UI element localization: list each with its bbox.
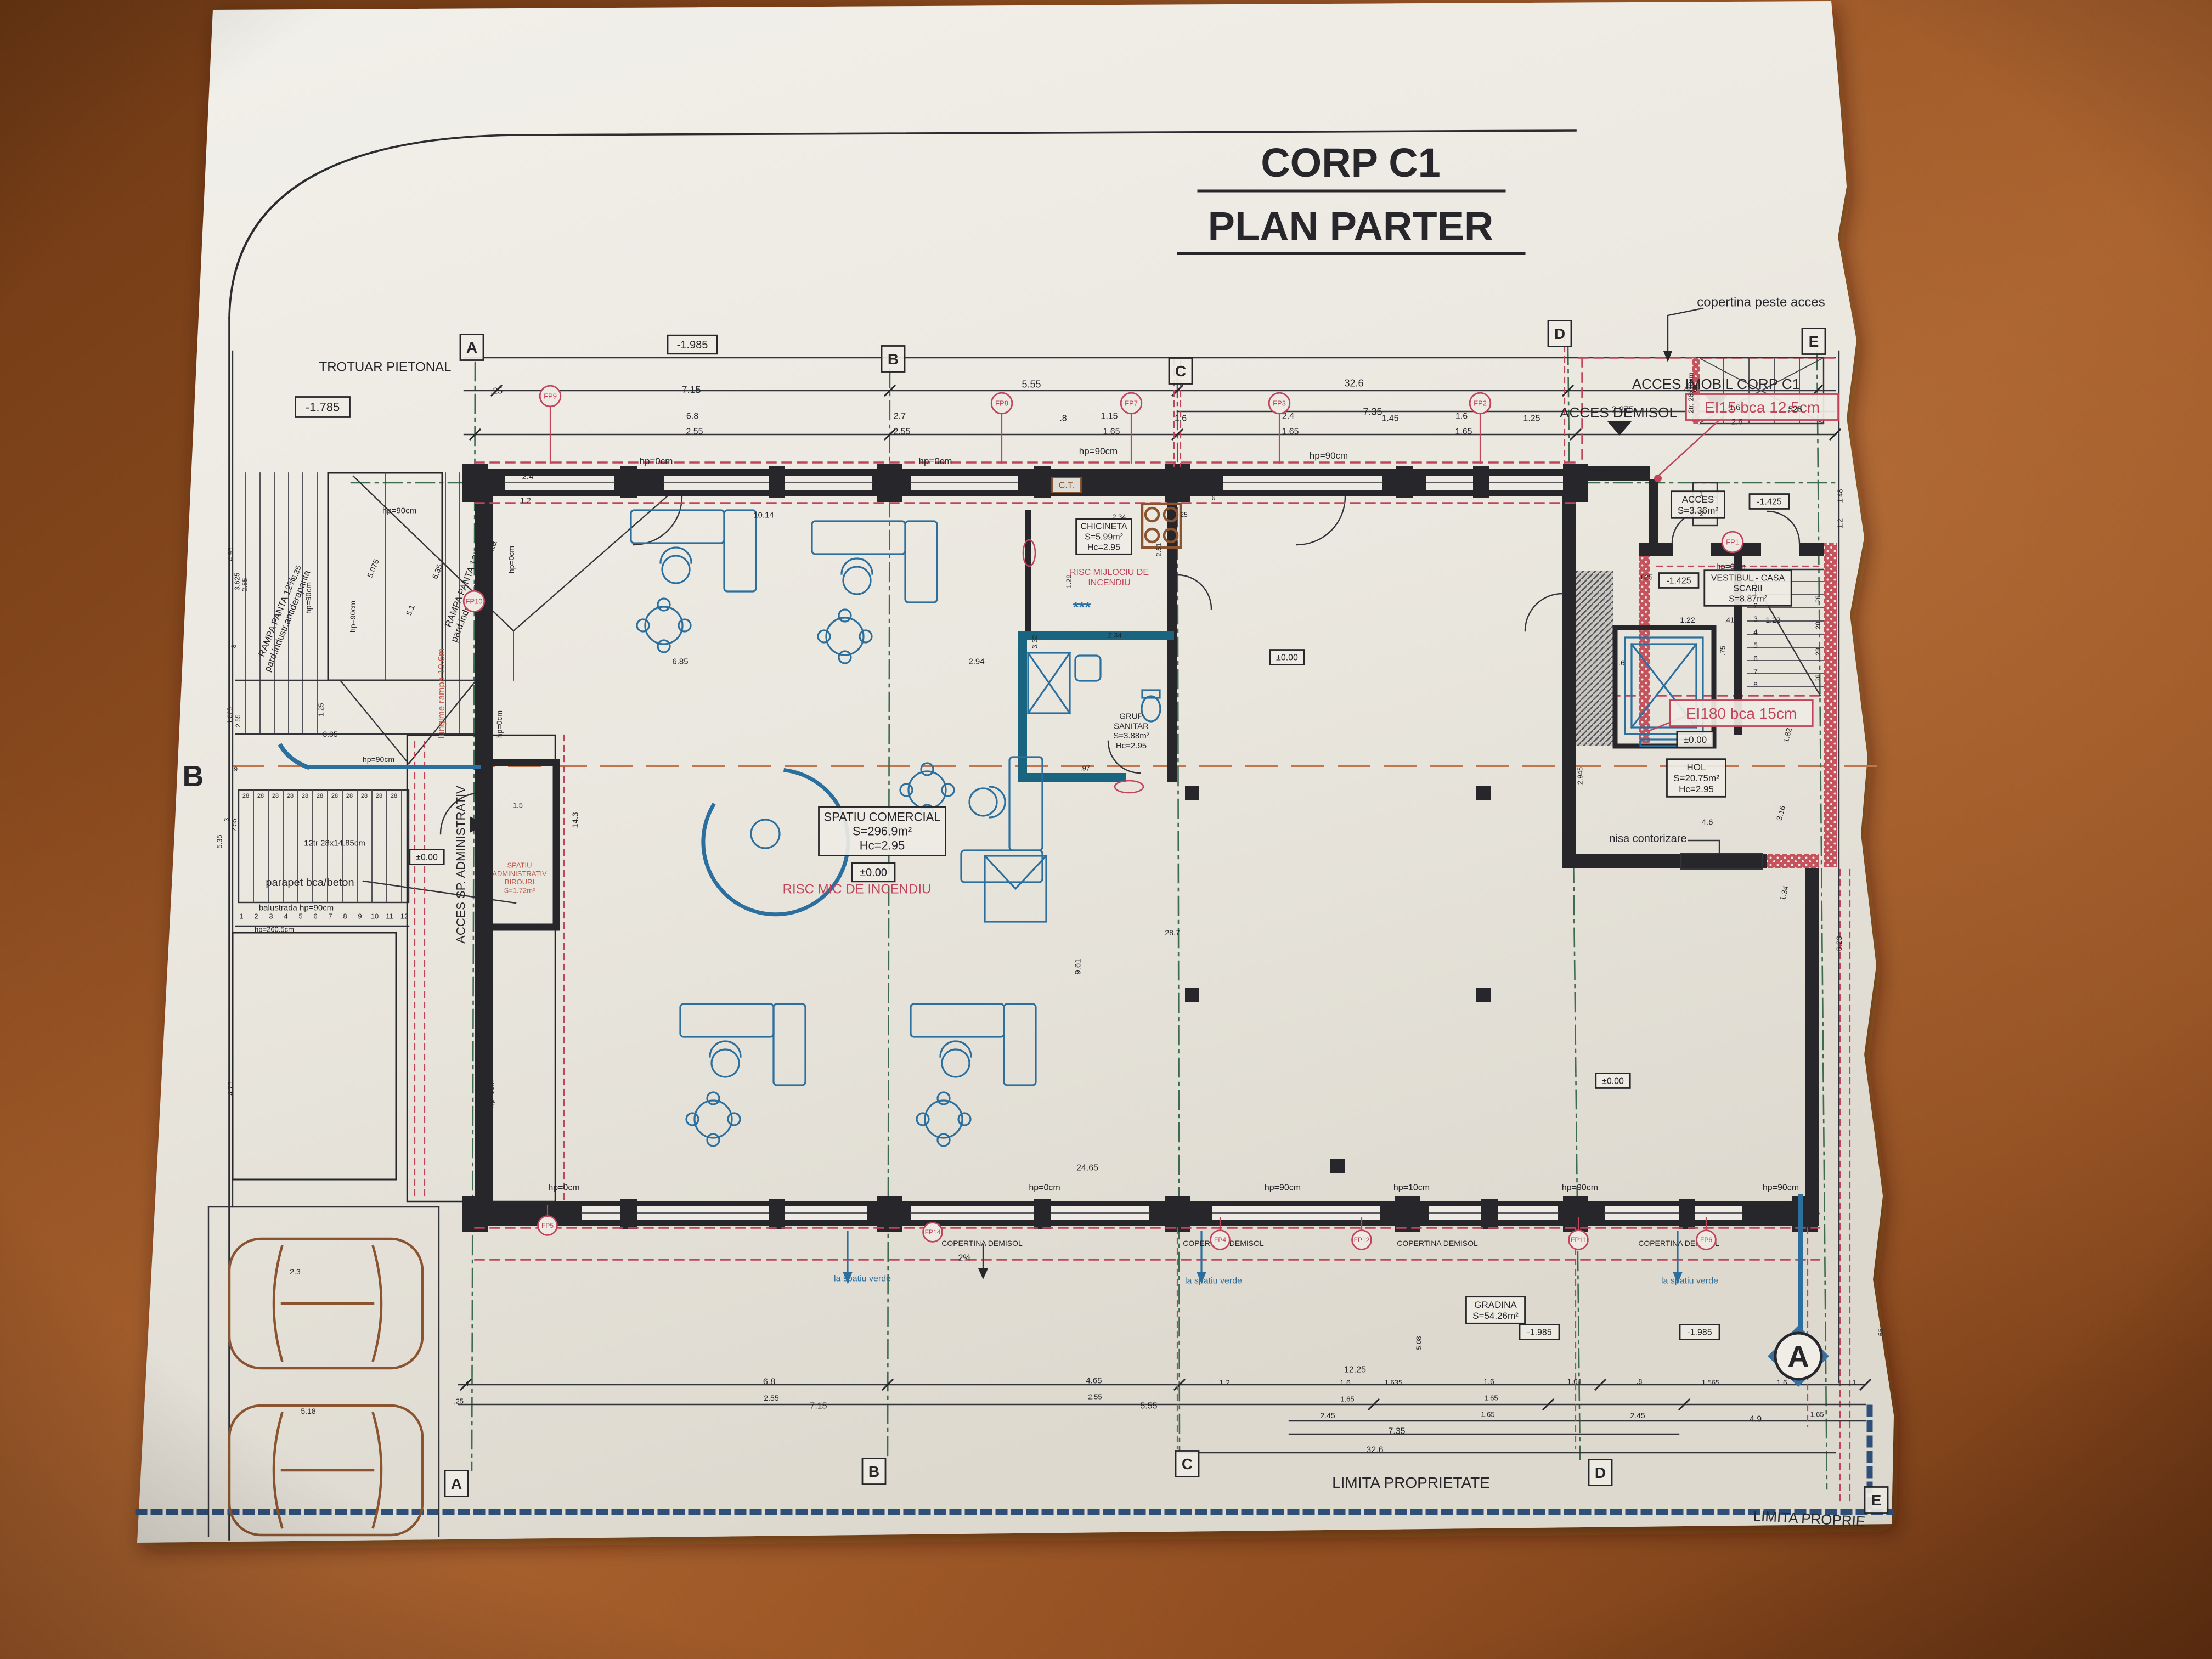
svg-text:5: 5 xyxy=(298,912,302,921)
svg-text:2.55: 2.55 xyxy=(764,1393,778,1402)
fp-marker: FP10 xyxy=(464,591,484,612)
svg-text:28: 28 xyxy=(376,793,382,799)
svg-text:1.65: 1.65 xyxy=(1340,1395,1354,1403)
svg-text:hp=0cm: hp=0cm xyxy=(919,456,952,466)
svg-text:1.2: 1.2 xyxy=(520,496,531,505)
plan-annotation: 2.45 xyxy=(1630,1411,1645,1420)
plan-annotation: 1.22 xyxy=(1680,616,1695,624)
grid-letter-top: B xyxy=(882,346,905,371)
plan-annotation: 32.6 xyxy=(1344,377,1363,388)
plan-annotation: 7.15 xyxy=(681,384,701,395)
svg-text:LIMITA PROPRIETATE: LIMITA PROPRIETATE xyxy=(1332,1474,1490,1491)
svg-text:1.29: 1.29 xyxy=(1065,574,1073,588)
svg-text:la spatiu verde: la spatiu verde xyxy=(834,1274,891,1284)
section-letter-b: B xyxy=(183,760,204,793)
svg-text:2.7: 2.7 xyxy=(894,412,906,421)
level-box: -1.985 xyxy=(1680,1325,1719,1340)
svg-text:hp=0cm: hp=0cm xyxy=(548,1183,579,1193)
svg-text:FP4: FP4 xyxy=(1214,1236,1226,1244)
plan-annotation: 28 xyxy=(242,793,249,799)
svg-text:28: 28 xyxy=(1814,595,1822,603)
plan-annotation: hp=90cm xyxy=(382,506,416,515)
plan-annotation: 1.29 xyxy=(1065,574,1073,588)
svg-text:1.22: 1.22 xyxy=(1680,616,1695,624)
svg-text:.8: .8 xyxy=(1059,414,1066,424)
grid-letter-top: E xyxy=(1802,328,1825,354)
svg-text:9: 9 xyxy=(358,912,362,921)
svg-text:1.5: 1.5 xyxy=(513,802,523,810)
stair-number: 8 xyxy=(343,912,347,921)
plan-annotation: 6 xyxy=(1212,494,1216,502)
plan-annotation: 6.8 xyxy=(686,412,698,421)
plan-annotation: 2.55 xyxy=(230,819,238,832)
plan-annotation: 4.95 xyxy=(227,547,235,561)
svg-text:hp=0cm: hp=0cm xyxy=(495,710,504,738)
plan-annotation: 28 xyxy=(1814,648,1822,656)
plan-annotation: 1.65 xyxy=(1455,427,1472,437)
plan-annotation: 2.55 xyxy=(241,578,249,591)
svg-text:2.94: 2.94 xyxy=(968,657,984,666)
svg-text:TROTUAR PIETONAL: TROTUAR PIETONAL xyxy=(319,359,452,374)
svg-text:2.4: 2.4 xyxy=(522,472,534,481)
svg-text:E: E xyxy=(1809,333,1819,350)
wet-wall xyxy=(1022,631,1174,640)
svg-text:.525: .525 xyxy=(1786,404,1802,414)
svg-text:1.65: 1.65 xyxy=(1481,1410,1494,1419)
svg-text:5.55: 5.55 xyxy=(1140,1402,1157,1411)
svg-text:hp=90cm: hp=90cm xyxy=(1763,1183,1799,1193)
svg-text:2.61: 2.61 xyxy=(1155,543,1163,556)
svg-text:7.15: 7.15 xyxy=(810,1402,827,1411)
parapet-height: hp=0cm xyxy=(640,456,673,466)
svg-text:EI15 bca 12.5cm: EI15 bca 12.5cm xyxy=(1705,399,1820,416)
plan-annotation: 5.55 xyxy=(1140,1402,1157,1411)
room-label: GRADINAS=54.26m² xyxy=(1466,1297,1525,1324)
svg-text:4.95: 4.95 xyxy=(227,547,235,561)
plan-annotation: .8 xyxy=(1637,1378,1643,1386)
svg-text:6.85: 6.85 xyxy=(672,657,688,666)
plan-annotation: hp=90cm xyxy=(348,601,357,633)
svg-text:12tr 28x14.85cm: 12tr 28x14.85cm xyxy=(304,838,365,848)
parapet-height: hp=0cm xyxy=(548,1183,579,1193)
svg-text:6: 6 xyxy=(313,912,317,921)
svg-text:2.3: 2.3 xyxy=(290,1267,301,1276)
room-label: HOLS=20.75m²Hc=2.95 xyxy=(1667,759,1725,797)
plan-annotation: 2.3 xyxy=(290,1267,301,1276)
parapet-label: parapet bca/beton xyxy=(266,877,354,889)
svg-text:1.6: 1.6 xyxy=(1776,1378,1787,1387)
svg-text:1: 1 xyxy=(1700,490,1703,498)
svg-text:14.3: 14.3 xyxy=(571,812,580,828)
plan-annotation: 1.635 xyxy=(1385,1379,1403,1387)
fire-rating-label: EI180 bca 15cm xyxy=(1670,700,1813,726)
to-green-label: la spatiu verde xyxy=(1185,1277,1242,1286)
svg-text:lungime rampa 19.6m: lungime rampa 19.6m xyxy=(436,648,447,738)
plan-annotation: 28 xyxy=(1814,674,1822,682)
svg-text:5.18: 5.18 xyxy=(301,1407,315,1415)
svg-text:±0.00: ±0.00 xyxy=(1684,735,1707,745)
svg-text:hp=10cm: hp=10cm xyxy=(1393,1183,1430,1193)
plan-annotation: .525 xyxy=(1786,404,1802,414)
svg-text:2.34: 2.34 xyxy=(1108,631,1121,640)
svg-text:5.35: 5.35 xyxy=(216,834,224,848)
to-green-label: la spatiu verde xyxy=(834,1274,891,1284)
plan-annotation: 1.65 xyxy=(1340,1395,1354,1403)
svg-text:6.8: 6.8 xyxy=(686,412,698,421)
plan-annotation: 1.65 xyxy=(1103,427,1120,437)
sheet-title-line1: CORP C1 xyxy=(1261,140,1441,185)
paper-sheet xyxy=(137,1,1894,1543)
svg-text:7.35: 7.35 xyxy=(1388,1427,1405,1436)
svg-text:***: *** xyxy=(1073,599,1091,616)
stair-number: 3 xyxy=(1753,614,1758,623)
svg-text:hp=90cm: hp=90cm xyxy=(363,755,394,764)
plan-annotation: 2.7 xyxy=(894,412,906,421)
svg-text:3.625: 3.625 xyxy=(233,573,241,591)
svg-text:FP1: FP1 xyxy=(1726,538,1739,546)
plan-annotation: 3 xyxy=(223,817,230,821)
svg-text:2: 2 xyxy=(1700,510,1703,518)
room-label: VESTIBUL - CASASCARIIS=8.87m² xyxy=(1705,571,1791,606)
grid-letter-top: C xyxy=(1169,358,1192,383)
svg-text:12: 12 xyxy=(400,912,408,921)
svg-text:28: 28 xyxy=(331,793,338,799)
property-line-label: LIMITA PROPRIETATE xyxy=(1332,1474,1490,1491)
svg-text:FP12: FP12 xyxy=(1354,1236,1370,1244)
svg-text:4: 4 xyxy=(1753,628,1758,636)
svg-text:1.65: 1.65 xyxy=(1455,427,1472,437)
plan-annotation: 2.55 xyxy=(893,427,910,437)
plan-annotation: .75 xyxy=(1719,646,1727,656)
svg-text:D: D xyxy=(1595,1464,1606,1481)
boiler-label: C.T. xyxy=(1052,478,1081,493)
stair-number: 5 xyxy=(1753,641,1758,650)
level-box: -1.985 xyxy=(668,335,717,354)
svg-text:hp=0cm: hp=0cm xyxy=(640,456,673,466)
plan-annotation: .625 xyxy=(1639,573,1652,582)
stair-number: 9 xyxy=(358,912,362,921)
svg-text:5.55: 5.55 xyxy=(1022,379,1041,390)
svg-text:28: 28 xyxy=(1814,648,1822,656)
plan-annotation: 6.8 xyxy=(763,1378,775,1387)
svg-text:1.15: 1.15 xyxy=(1101,412,1118,421)
plan-annotation: 5.18 xyxy=(301,1407,315,1415)
admin-access-label: ACCES SP. ADMINISTRATIV xyxy=(454,786,468,944)
plan-annotation: 1.65 xyxy=(1484,1394,1498,1402)
plan-annotation: 32.6 xyxy=(1366,1446,1383,1455)
grid-letter-bottom: A xyxy=(445,1470,468,1496)
svg-text:28: 28 xyxy=(346,793,353,799)
svg-text:2.6: 2.6 xyxy=(1731,417,1743,426)
svg-text:1.6: 1.6 xyxy=(1614,658,1625,667)
railing-label: balustrada hp=90cm xyxy=(259,903,334,912)
svg-text:±0.00: ±0.00 xyxy=(416,853,438,862)
plan-annotation: 10.14 xyxy=(753,510,774,520)
plan-annotation: 28 xyxy=(331,793,338,799)
svg-text:FP10: FP10 xyxy=(465,597,482,606)
plan-annotation: 2.55 xyxy=(764,1393,778,1402)
plan-annotation: 1 xyxy=(1700,490,1703,498)
plan-annotation: 2.34 xyxy=(1112,513,1126,521)
parapet-height: hp=90cm xyxy=(1310,450,1348,461)
plan-annotation: 1.48 xyxy=(1836,489,1844,503)
plan-annotation: 1.6 xyxy=(1340,1378,1351,1387)
plan-annotation: .8 xyxy=(1059,414,1066,424)
svg-text:1.65: 1.65 xyxy=(1484,1394,1498,1402)
svg-text:11: 11 xyxy=(386,912,393,921)
plan-annotation: 28 xyxy=(1814,622,1822,629)
plan-annotation: 7.15 xyxy=(810,1402,827,1411)
svg-text:GRADINAS=54.26m²: GRADINAS=54.26m² xyxy=(1472,1300,1519,1321)
stair-number: 6 xyxy=(1753,654,1758,663)
svg-text:1.6: 1.6 xyxy=(1729,403,1741,412)
svg-text:25: 25 xyxy=(1180,511,1188,518)
svg-text:28: 28 xyxy=(361,793,368,799)
svg-text:5.08: 5.08 xyxy=(1415,1336,1423,1350)
svg-text:6: 6 xyxy=(1753,654,1758,663)
stair-number: 4 xyxy=(1753,628,1758,636)
masonry-wall xyxy=(1767,854,1819,868)
svg-text:±0.00: ±0.00 xyxy=(860,867,887,879)
wet-wall xyxy=(1018,631,1027,782)
svg-text:7: 7 xyxy=(1753,667,1758,676)
room-label: SPATIU COMERCIALS=296.9m²Hc=2.95 xyxy=(819,807,946,856)
plan-annotation: 2.55 xyxy=(1088,1393,1102,1401)
plan-annotation: 2.55 xyxy=(234,714,242,727)
stair-number: 4 xyxy=(284,912,287,921)
svg-text:28: 28 xyxy=(302,793,308,799)
plan-annotation: 12.25 xyxy=(1344,1365,1366,1375)
plan-annotation: 2.45 xyxy=(1320,1411,1335,1420)
level-box: ±0.00 xyxy=(1270,650,1304,665)
plan-annotation: hp=260.5cm xyxy=(255,926,294,934)
svg-text:1: 1 xyxy=(1753,588,1758,597)
stair-number: 7 xyxy=(328,912,332,921)
svg-text:.97: .97 xyxy=(1080,764,1090,772)
svg-text:1.48: 1.48 xyxy=(1836,489,1844,503)
plan-annotation: 1.6 xyxy=(1455,412,1468,421)
plan-annotation: 1.6 xyxy=(1614,658,1625,667)
plan-annotation: 1.22 xyxy=(1765,616,1780,624)
masonry-wall xyxy=(1824,543,1837,867)
svg-text:ACCESS=3.36m²: ACCESS=3.36m² xyxy=(1678,494,1719,516)
plan-annotation: 28 xyxy=(346,793,353,799)
svg-text:.65: .65 xyxy=(1877,1328,1885,1338)
stair-number: 3 xyxy=(269,912,273,921)
svg-text:A: A xyxy=(466,339,477,356)
svg-text:FP5: FP5 xyxy=(541,1222,554,1229)
level-box: ±0.00 xyxy=(410,850,444,865)
svg-text:B: B xyxy=(888,351,899,368)
stair-number: 2 xyxy=(1753,601,1758,610)
svg-text:FP3: FP3 xyxy=(1273,399,1286,408)
svg-text:.9: .9 xyxy=(232,765,238,773)
parapet-height: hp=90cm xyxy=(1562,1183,1598,1193)
svg-text:8: 8 xyxy=(343,912,347,921)
svg-text:28: 28 xyxy=(257,793,264,799)
svg-text:28.7: 28.7 xyxy=(1165,928,1180,937)
svg-text:2.55: 2.55 xyxy=(234,714,242,727)
svg-text:FP14: FP14 xyxy=(925,1228,941,1236)
svg-text:la spatiu verde: la spatiu verde xyxy=(1185,1277,1242,1286)
stair-number: 1 xyxy=(1753,588,1758,597)
svg-text:FP6: FP6 xyxy=(1700,1236,1712,1244)
svg-text:6.8: 6.8 xyxy=(763,1378,775,1387)
svg-text:-1.985: -1.985 xyxy=(1687,1328,1712,1338)
parapet-height: hp=90cm xyxy=(1763,1183,1799,1193)
stair-number: 5 xyxy=(298,912,302,921)
svg-text:COPERTINA DEMISOL: COPERTINA DEMISOL xyxy=(1397,1239,1478,1248)
svg-text:B: B xyxy=(868,1463,879,1480)
svg-text:1.565: 1.565 xyxy=(1702,1379,1720,1387)
svg-text:1.6: 1.6 xyxy=(1455,412,1468,421)
svg-text:1.6: 1.6 xyxy=(1483,1377,1494,1386)
svg-text:1.65: 1.65 xyxy=(1282,427,1299,437)
plan-annotation: 28 xyxy=(376,793,382,799)
grid-letter-top: A xyxy=(460,334,483,360)
parapet-height: hp=10cm xyxy=(1393,1183,1430,1193)
plan-annotation: 1.6 xyxy=(1483,1377,1494,1386)
plan-annotation: 2.945 xyxy=(1576,767,1584,785)
svg-text:COPERTINA DEMISOL: COPERTINA DEMISOL xyxy=(941,1239,1023,1248)
svg-text:1.22: 1.22 xyxy=(1765,616,1780,624)
level-box: -1.425 xyxy=(1750,494,1789,509)
grid-letter-bottom: C xyxy=(1176,1451,1199,1476)
svg-text:6.23: 6.23 xyxy=(1835,936,1843,951)
svg-text:1.65: 1.65 xyxy=(1810,1410,1824,1419)
svg-text:7.35: 7.35 xyxy=(1363,406,1382,417)
plan-annotation: 1.6 xyxy=(1729,403,1741,412)
plan-annotation: 2.34 xyxy=(1108,631,1121,640)
svg-text:4: 4 xyxy=(284,912,287,921)
svg-text:1.635: 1.635 xyxy=(1385,1379,1403,1387)
svg-text:2.55: 2.55 xyxy=(893,427,910,437)
svg-text:C.T.: C.T. xyxy=(1059,481,1074,490)
plan-annotation: 4.65 xyxy=(1086,1376,1102,1385)
svg-text:2: 2 xyxy=(1753,601,1758,610)
level-box: ±0.00 xyxy=(852,863,895,882)
svg-text:1.25: 1.25 xyxy=(317,703,325,716)
stair-number: 7 xyxy=(1753,667,1758,676)
svg-text:2.55: 2.55 xyxy=(686,427,703,437)
svg-text:C: C xyxy=(1175,363,1186,380)
svg-text:copertina peste acces: copertina peste acces xyxy=(1697,295,1825,309)
canopy-note: copertina peste acces xyxy=(1697,295,1825,309)
plan-annotation: 1.25 xyxy=(317,703,325,716)
svg-text:7.15: 7.15 xyxy=(681,384,701,395)
svg-text:28: 28 xyxy=(272,793,279,799)
parapet-height: hp=0cm xyxy=(1029,1183,1060,1193)
plan-annotation: 2.61 xyxy=(1155,543,1163,556)
svg-text:1.6: 1.6 xyxy=(1175,414,1187,424)
plan-annotation: hp=0cm xyxy=(495,710,504,738)
plan-annotation: .25 xyxy=(454,1397,464,1406)
svg-text:1.61: 1.61 xyxy=(1567,1377,1582,1386)
plan-annotation: 14.3 xyxy=(571,812,580,828)
plan-annotation: 28 xyxy=(257,793,264,799)
plan-annotation: 5.55 xyxy=(1022,379,1041,390)
plan-annotation: 1.6 xyxy=(1175,414,1187,424)
svg-text:24.65: 24.65 xyxy=(1076,1164,1098,1173)
svg-text:2.34: 2.34 xyxy=(1112,513,1126,521)
svg-text:hp=90cm: hp=90cm xyxy=(382,506,416,515)
svg-text:28: 28 xyxy=(391,793,397,799)
svg-text:la spatiu verde: la spatiu verde xyxy=(1661,1277,1718,1286)
svg-text:2.55: 2.55 xyxy=(1088,1393,1102,1401)
svg-text:1.65: 1.65 xyxy=(1103,427,1120,437)
svg-text:3: 3 xyxy=(1753,614,1758,623)
svg-text:hp=90cm: hp=90cm xyxy=(348,601,357,633)
plan-annotation: 2.4 xyxy=(522,472,534,481)
svg-text:1.2: 1.2 xyxy=(1836,518,1844,528)
svg-text:8: 8 xyxy=(230,644,238,648)
plan-annotation: 28 xyxy=(317,793,323,799)
svg-text:EI180 bca 15cm: EI180 bca 15cm xyxy=(1686,705,1797,722)
fp-marker: FP14 xyxy=(923,1223,943,1242)
svg-text:8: 8 xyxy=(1753,680,1758,689)
grid-letter-bottom: E xyxy=(1865,1487,1888,1513)
plan-annotation: 28 xyxy=(1814,595,1822,603)
plan-annotation: 25 xyxy=(1180,511,1188,518)
svg-text:.625: .625 xyxy=(1639,573,1652,582)
plan-annotation: hp=0cm xyxy=(487,1080,495,1108)
svg-text:.41: .41 xyxy=(1724,616,1734,624)
plan-annotation: 1.15 xyxy=(1101,412,1118,421)
plan-annotation: 1.2 xyxy=(1836,518,1844,528)
svg-text:.4: .4 xyxy=(462,1379,469,1388)
stars: *** xyxy=(1073,599,1091,616)
svg-text:-1.985: -1.985 xyxy=(677,339,708,351)
svg-text:A: A xyxy=(451,1475,462,1492)
svg-text:FP11: FP11 xyxy=(1571,1236,1586,1244)
svg-text:A: A xyxy=(1788,1340,1809,1373)
svg-text:28: 28 xyxy=(287,793,294,799)
svg-text:4.75: 4.75 xyxy=(227,1081,235,1095)
canopy-basement-label: COPERTINA DEMISOL xyxy=(1397,1239,1478,1248)
svg-text:-1.425: -1.425 xyxy=(1757,498,1781,507)
plan-annotation: 2.6 xyxy=(1731,417,1743,426)
svg-text:32.6: 32.6 xyxy=(1344,377,1363,388)
svg-text:hp=90cm: hp=90cm xyxy=(1265,1183,1301,1193)
plan-annotation: 9.61 xyxy=(1073,958,1082,974)
plan-annotation: 1.65 xyxy=(1481,1410,1494,1419)
level-box: ±0.00 xyxy=(1677,732,1713,748)
room-label: CHICINETAS=5.99m²Hc=2.95 xyxy=(1076,519,1132,555)
plan-annotation: .25 xyxy=(490,387,503,396)
plan-annotation: 1.65 xyxy=(1810,1410,1824,1419)
plan-annotation: 3.05 xyxy=(323,730,337,738)
plan-annotation: 1.5 xyxy=(513,802,523,810)
plan-annotation: hp=0cm xyxy=(507,546,516,573)
plan-annotation: 7.35 xyxy=(1388,1427,1405,1436)
svg-text:-1.425: -1.425 xyxy=(1666,577,1691,586)
plan-annotation: .9 xyxy=(232,765,238,773)
plan-annotation: 5.08 xyxy=(1415,1336,1423,1350)
svg-text:FP7: FP7 xyxy=(1125,399,1138,408)
svg-text:28: 28 xyxy=(1814,622,1822,629)
svg-text:.25: .25 xyxy=(454,1397,464,1406)
svg-text:12.25: 12.25 xyxy=(1344,1365,1366,1375)
svg-text:2: 2 xyxy=(254,912,258,921)
photo-of-floor-plan: CORP C1 PLAN PARTER TROTUAR PIETONAL-1.7… xyxy=(0,0,2212,1659)
plan-annotation: 3.32 xyxy=(1031,635,1039,648)
svg-text:2.55: 2.55 xyxy=(241,578,249,591)
svg-text:C: C xyxy=(1182,1455,1193,1472)
plan-annotation: .97 xyxy=(1080,764,1090,772)
svg-text:1: 1 xyxy=(1852,1379,1856,1387)
svg-text:2%: 2% xyxy=(958,1254,970,1263)
level-box: -1.785 xyxy=(296,397,350,417)
